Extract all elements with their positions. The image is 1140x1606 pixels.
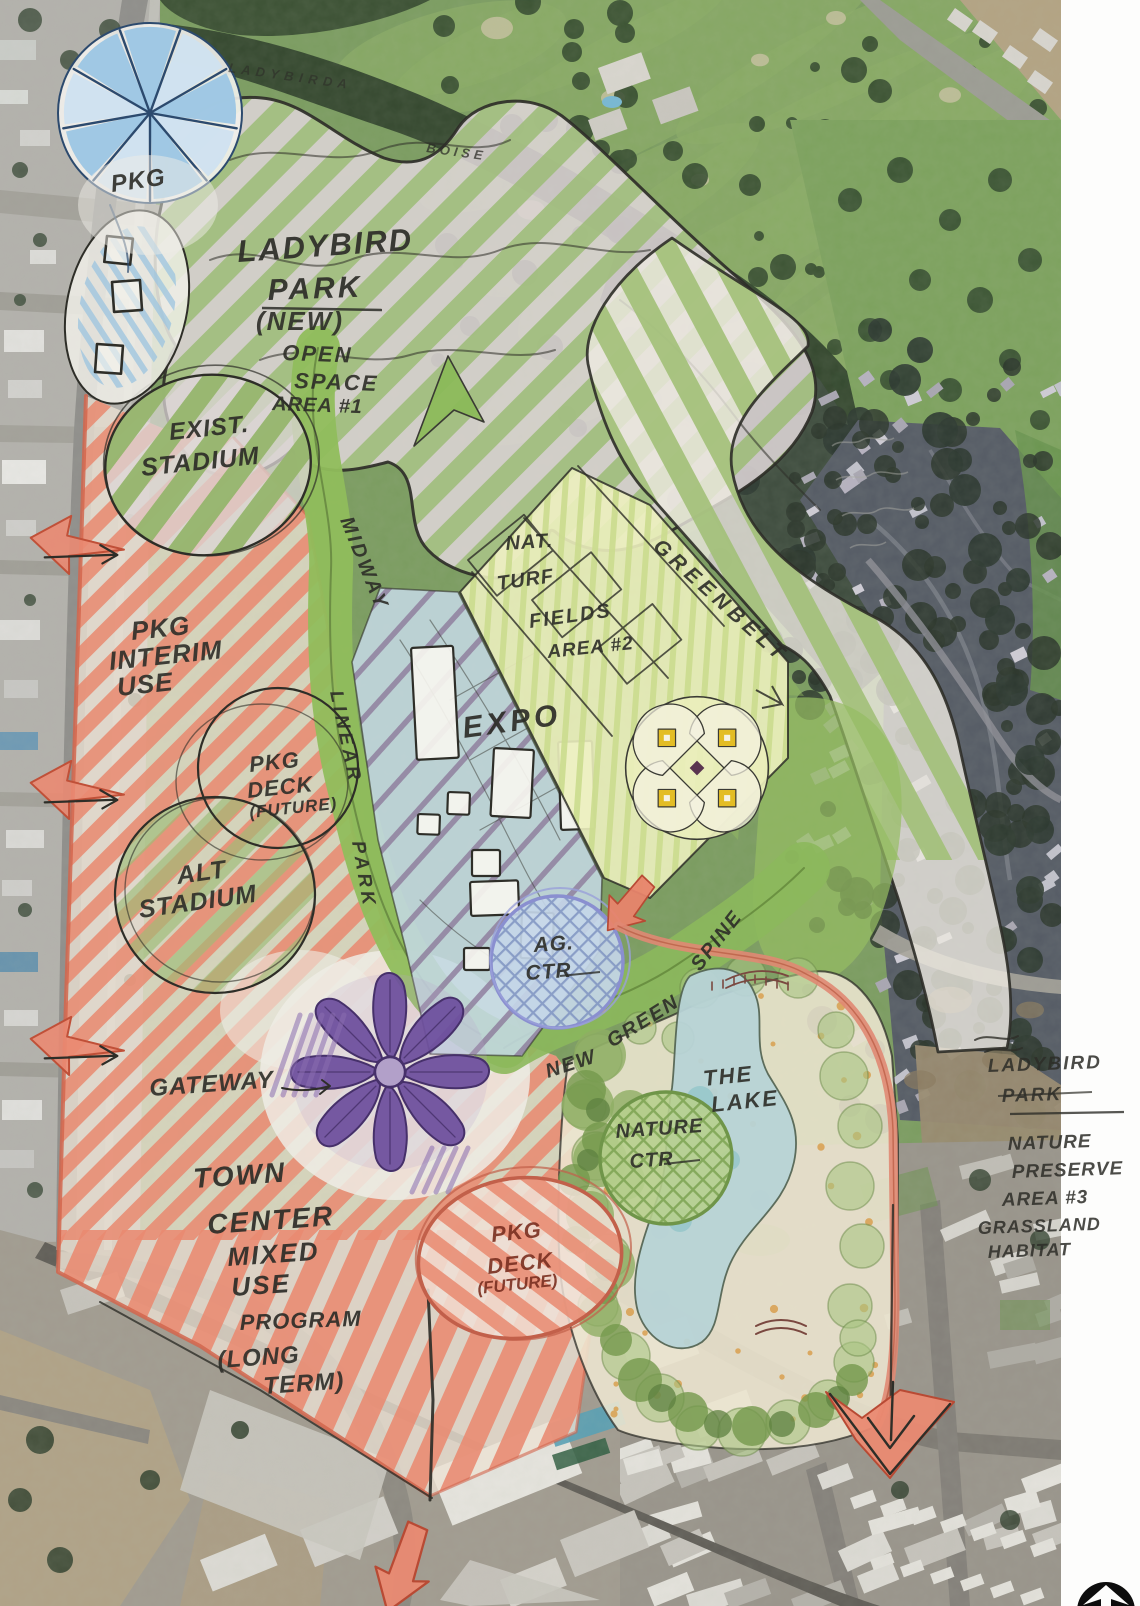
svg-text:OPEN: OPEN [282, 340, 353, 367]
svg-text:USE: USE [115, 666, 174, 702]
svg-text:TERM): TERM) [263, 1367, 346, 1400]
svg-text:(NEW): (NEW) [256, 306, 344, 336]
svg-text:PRESERVE: PRESERVE [1011, 1158, 1123, 1183]
svg-text:NAT.: NAT. [505, 530, 554, 555]
svg-text:CTR: CTR [525, 959, 573, 985]
svg-text:AREA #3: AREA #3 [1000, 1187, 1088, 1211]
svg-text:AG.: AG. [532, 931, 575, 957]
svg-text:PROGRAM: PROGRAM [239, 1306, 362, 1335]
svg-text:USE: USE [230, 1268, 291, 1302]
svg-text:AREA #1: AREA #1 [271, 393, 363, 418]
svg-text:LADYBIRD: LADYBIRD [987, 1052, 1102, 1077]
svg-text:(LONG: (LONG [217, 1341, 301, 1374]
svg-text:PKG: PKG [490, 1217, 543, 1247]
svg-text:SPACE: SPACE [294, 368, 379, 396]
svg-text:NATURE: NATURE [1007, 1131, 1092, 1155]
svg-text:TOWN: TOWN [192, 1157, 287, 1194]
svg-text:HABITAT: HABITAT [987, 1239, 1072, 1262]
svg-text:MIXED: MIXED [226, 1236, 320, 1272]
svg-text:CTR: CTR [629, 1148, 675, 1173]
svg-text:THE: THE [702, 1061, 754, 1091]
svg-text:PARK: PARK [267, 271, 363, 307]
